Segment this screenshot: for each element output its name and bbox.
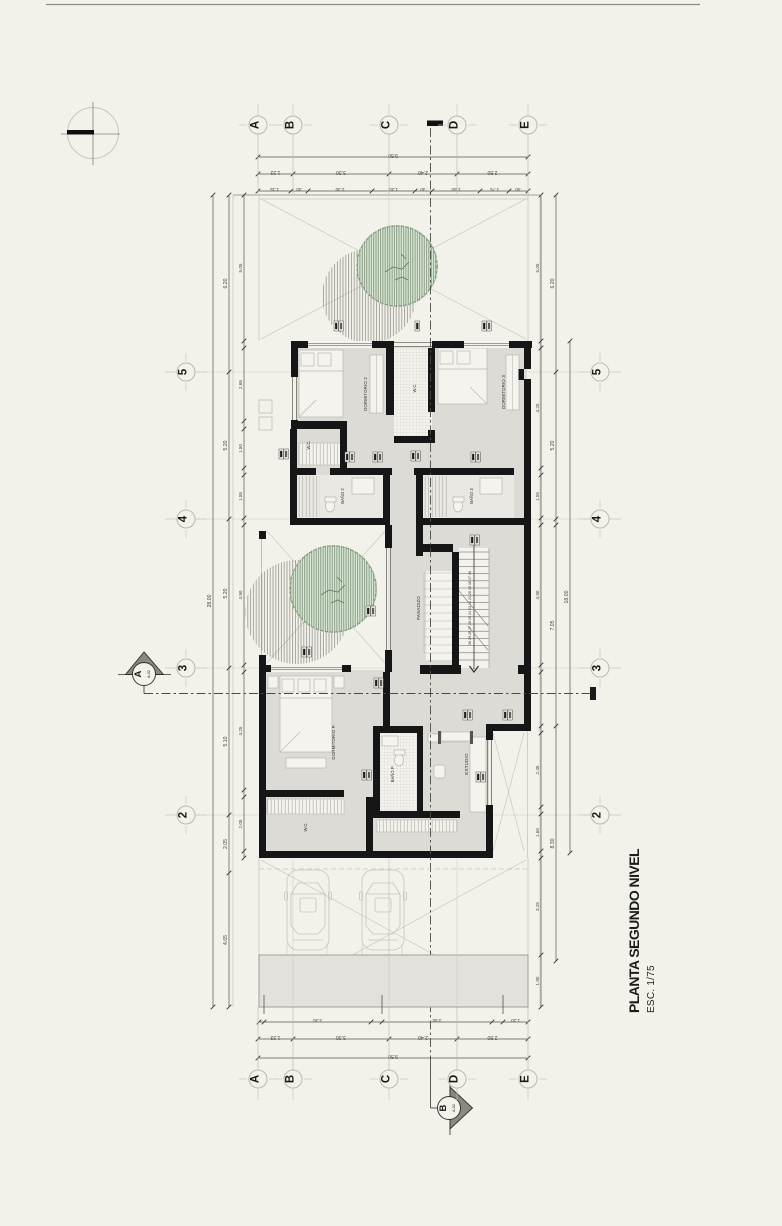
svg-text:5.05: 5.05 xyxy=(535,263,540,272)
svg-text:2.50: 2.50 xyxy=(487,1034,497,1040)
svg-text:2: 2 xyxy=(178,812,190,818)
svg-text:2.40: 2.40 xyxy=(418,1034,428,1040)
svg-text:3.30: 3.30 xyxy=(336,169,346,175)
svg-text:A-02: A-02 xyxy=(452,1104,456,1112)
svg-text:4.65: 4.65 xyxy=(223,935,229,945)
svg-text:4: 4 xyxy=(592,515,604,522)
svg-text:5: 5 xyxy=(592,368,604,375)
svg-text:D: D xyxy=(449,121,461,129)
svg-text:B: B xyxy=(438,1104,449,1111)
svg-text:.40: .40 xyxy=(515,187,522,192)
svg-text:18.00: 18.00 xyxy=(564,590,570,603)
svg-text:A: A xyxy=(250,1075,262,1083)
svg-text:E: E xyxy=(520,1075,532,1083)
svg-text:1.15: 1.15 xyxy=(270,187,279,192)
svg-text:2.05: 2.05 xyxy=(223,839,229,849)
svg-text:1.75: 1.75 xyxy=(490,187,499,192)
svg-text:8.30: 8.30 xyxy=(550,838,556,848)
svg-text:3: 3 xyxy=(178,665,190,671)
svg-text:5.05: 5.05 xyxy=(238,263,243,272)
svg-text:A-02: A-02 xyxy=(147,670,151,678)
svg-text:2.05: 2.05 xyxy=(238,819,243,828)
svg-text:PLANTA SEGUNDO NIVEL: PLANTA SEGUNDO NIVEL xyxy=(626,848,642,1013)
svg-text:ESC. 1/75: ESC. 1/75 xyxy=(646,965,657,1013)
svg-text:28.00: 28.00 xyxy=(207,594,213,607)
svg-text:A: A xyxy=(250,121,262,129)
svg-text:6.20: 6.20 xyxy=(223,278,229,288)
svg-text:5: 5 xyxy=(178,368,190,375)
svg-text:7.05: 7.05 xyxy=(550,620,556,630)
svg-text:5.10: 5.10 xyxy=(223,736,229,746)
svg-text:3: 3 xyxy=(592,665,604,671)
svg-text:2.30: 2.30 xyxy=(335,187,344,192)
svg-text:1.60: 1.60 xyxy=(535,828,540,837)
svg-text:3.25: 3.25 xyxy=(535,902,540,911)
svg-text:4.25: 4.25 xyxy=(535,403,540,412)
svg-text:2.50: 2.50 xyxy=(487,169,497,175)
svg-text:D: D xyxy=(449,1075,461,1083)
svg-text:W.C.: W.C. xyxy=(306,440,311,449)
svg-text:1.20: 1.20 xyxy=(511,1018,520,1023)
svg-text:3.90: 3.90 xyxy=(432,1018,441,1023)
svg-text:A: A xyxy=(133,670,144,677)
svg-text:B: B xyxy=(285,121,297,129)
svg-text:B: B xyxy=(285,1075,297,1083)
svg-text:DORMITORIO 3: DORMITORIO 3 xyxy=(501,375,506,409)
svg-text:1.55: 1.55 xyxy=(535,492,540,501)
svg-text:5.20: 5.20 xyxy=(223,440,229,450)
svg-text:.40: .40 xyxy=(296,187,303,192)
svg-text:BAÑO P.: BAÑO P. xyxy=(390,766,395,782)
svg-text:2.40: 2.40 xyxy=(418,169,428,175)
svg-text:1.50: 1.50 xyxy=(238,444,243,453)
svg-text:1.90: 1.90 xyxy=(535,976,540,985)
svg-text:9.50: 9.50 xyxy=(388,152,398,158)
svg-text:1.33: 1.33 xyxy=(270,169,280,175)
svg-text:5.20: 5.20 xyxy=(223,588,229,598)
svg-text:9.50: 9.50 xyxy=(388,1053,398,1059)
svg-text:W.C.: W.C. xyxy=(303,822,308,831)
svg-text:W.C.: W.C. xyxy=(412,383,417,392)
svg-text:C: C xyxy=(381,1075,393,1083)
svg-text:3.30: 3.30 xyxy=(313,1018,322,1023)
svg-text:E: E xyxy=(520,121,532,129)
svg-text:1.33: 1.33 xyxy=(270,1034,280,1040)
svg-text:C: C xyxy=(381,121,393,129)
svg-text:1.55: 1.55 xyxy=(238,492,243,501)
svg-text:2.65: 2.65 xyxy=(238,380,243,389)
svg-text:4: 4 xyxy=(178,515,190,522)
svg-text:4.90: 4.90 xyxy=(238,590,243,599)
svg-text:3.30: 3.30 xyxy=(336,1034,346,1040)
svg-text:30 29 28 27 26 25 24 23 22 21: 30 29 28 27 26 25 24 23 22 21 20 19 18 1… xyxy=(468,571,472,645)
svg-text:4.90: 4.90 xyxy=(535,590,540,599)
svg-text:DORMITORIO 2: DORMITORIO 2 xyxy=(363,377,368,411)
svg-text:6.20: 6.20 xyxy=(550,278,556,288)
svg-text:2.45: 2.45 xyxy=(535,765,540,774)
svg-text:BAÑO 3: BAÑO 3 xyxy=(469,488,474,504)
svg-text:PASADIZO: PASADIZO xyxy=(416,596,421,620)
svg-text:5.20: 5.20 xyxy=(550,440,556,450)
svg-text:4.25: 4.25 xyxy=(238,726,243,735)
svg-text:ESTUDIO: ESTUDIO xyxy=(464,753,469,775)
svg-text:1.50: 1.50 xyxy=(451,187,460,192)
svg-text:2: 2 xyxy=(592,812,604,818)
svg-text:1.20: 1.20 xyxy=(389,187,398,192)
svg-text:.30: .30 xyxy=(420,187,427,192)
svg-text:BAÑO 2: BAÑO 2 xyxy=(340,488,345,504)
svg-text:DORMITORIO P.: DORMITORIO P. xyxy=(331,724,336,759)
